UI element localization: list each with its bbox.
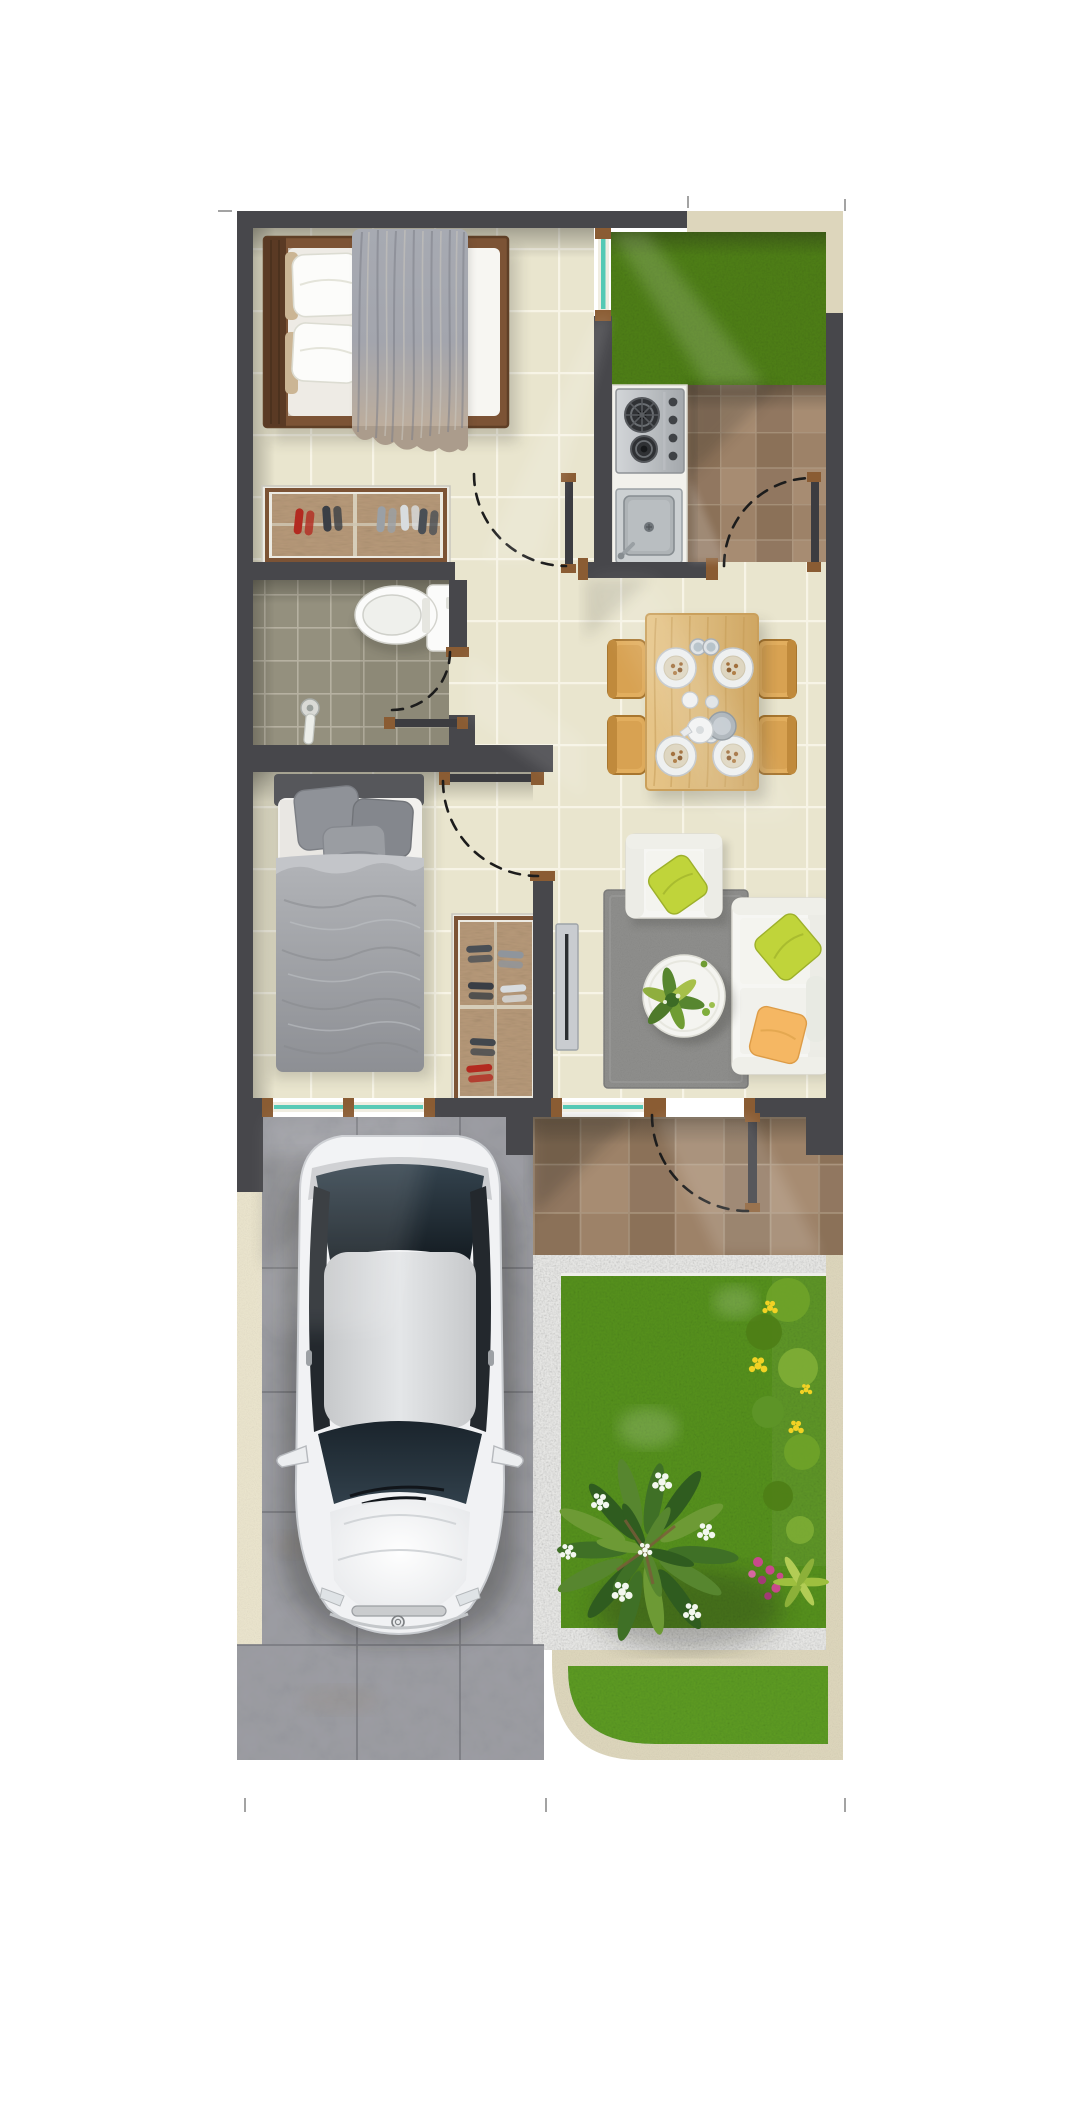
double-bed bbox=[264, 229, 508, 453]
street-lawn-strip bbox=[568, 1666, 828, 1744]
dining-chair bbox=[608, 716, 646, 774]
side-walkway bbox=[237, 1192, 262, 1645]
car-windshield bbox=[318, 1421, 482, 1504]
blanket bbox=[276, 854, 424, 1072]
stove-knob bbox=[669, 434, 678, 443]
pillow bbox=[292, 253, 360, 317]
pebble-column-left bbox=[533, 1275, 561, 1650]
blanket bbox=[352, 229, 470, 453]
kitchen bbox=[612, 385, 697, 565]
bedroom-2-front-window bbox=[262, 1098, 435, 1117]
yard-parapet-right bbox=[826, 211, 843, 313]
armchair bbox=[626, 834, 728, 926]
garden-curb-line bbox=[561, 1273, 826, 1276]
single-bed bbox=[274, 774, 424, 1072]
living-room-front-window bbox=[551, 1098, 655, 1117]
kitchen-sink bbox=[616, 489, 682, 563]
bedroom-1-side-window bbox=[595, 228, 611, 321]
gas-stove bbox=[616, 389, 684, 473]
pebble-band-top bbox=[533, 1255, 843, 1275]
shoe-rack bbox=[262, 486, 450, 564]
shoe-cabinet bbox=[452, 914, 540, 1104]
car-grille bbox=[352, 1606, 446, 1616]
pier bbox=[806, 1117, 830, 1155]
car-door-handle bbox=[488, 1350, 494, 1366]
yard-parapet-top bbox=[687, 211, 843, 232]
car-emblem bbox=[392, 1616, 404, 1628]
car-door-handle bbox=[306, 1350, 312, 1366]
floor-plan-rendering bbox=[0, 0, 1091, 2105]
driveway bbox=[237, 1645, 544, 1760]
stove-knob bbox=[669, 452, 678, 461]
sofa bbox=[732, 898, 834, 1078]
toilet bbox=[354, 585, 457, 654]
stove-knob bbox=[669, 416, 678, 425]
pier bbox=[237, 1117, 263, 1192]
pillow bbox=[291, 322, 360, 383]
pier bbox=[506, 1117, 533, 1155]
stove-knob bbox=[669, 398, 678, 407]
wall-tv bbox=[556, 924, 578, 1050]
